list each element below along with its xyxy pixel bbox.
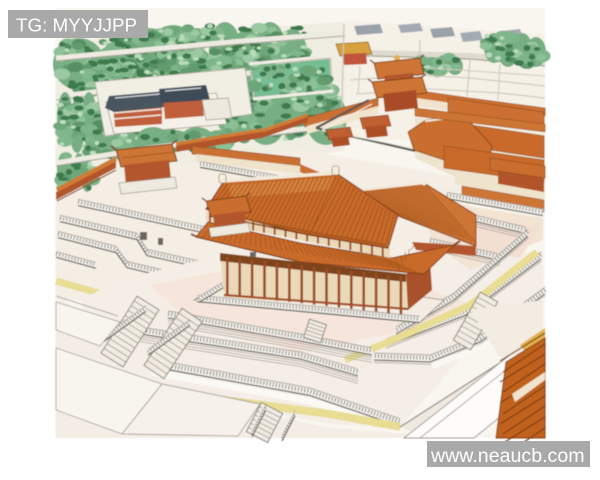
svg-text:www.neaucb.com: www.neaucb.com (430, 445, 585, 467)
svg-text:TG: MYYJJPP: TG: MYYJJPP (16, 15, 137, 36)
